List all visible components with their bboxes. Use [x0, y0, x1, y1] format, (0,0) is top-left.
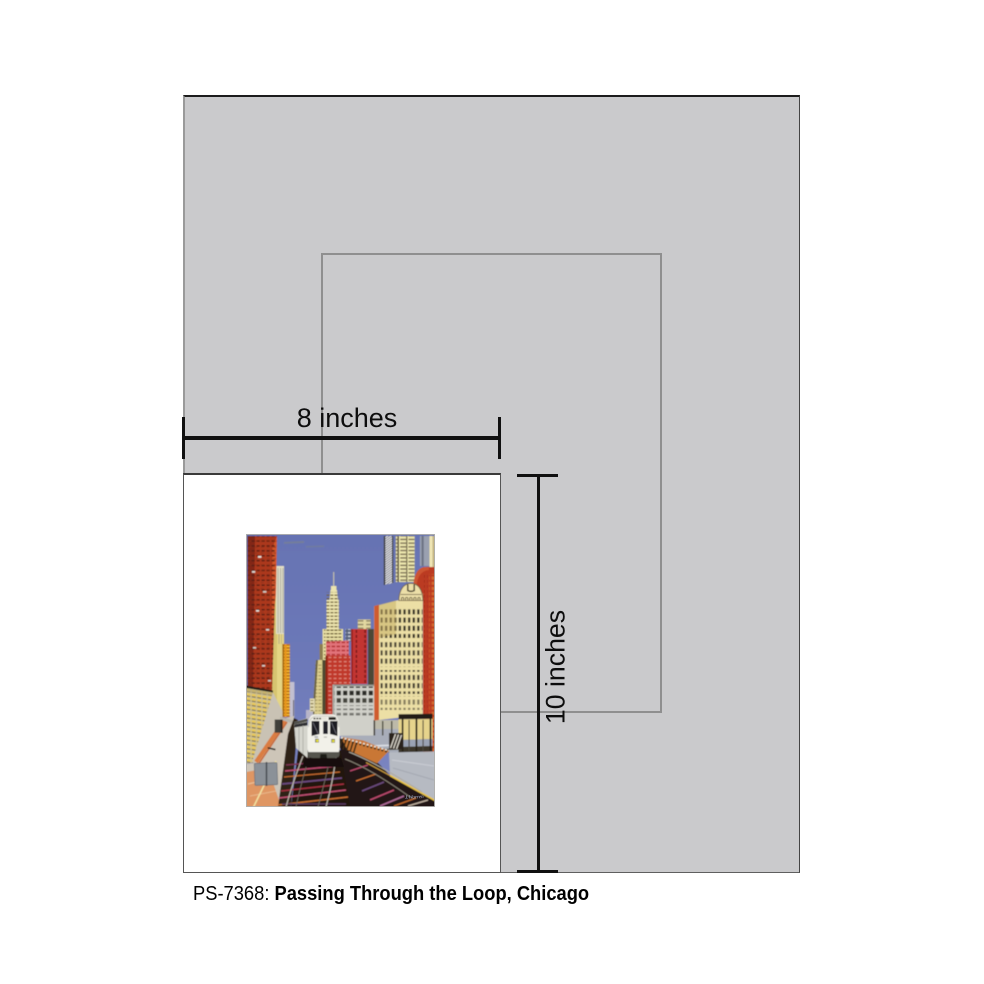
svg-text:J.Warren: J.Warren — [405, 794, 424, 801]
